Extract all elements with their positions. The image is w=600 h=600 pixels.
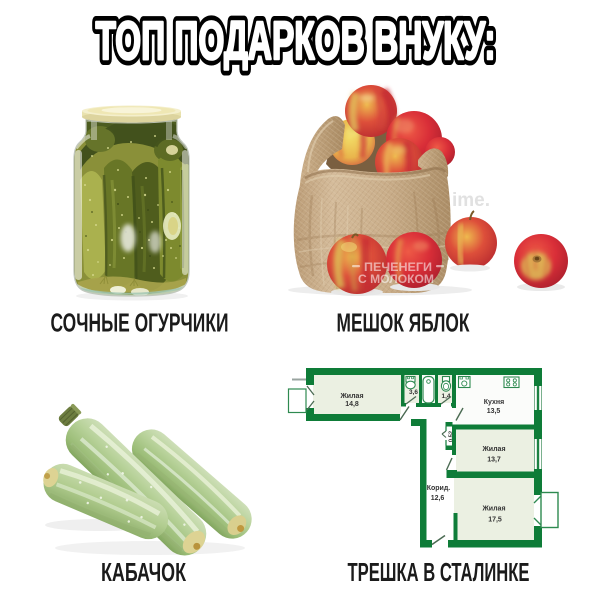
svg-text:ime.: ime. — [452, 190, 490, 211]
svg-text:МЕШОК ЯБЛОК: МЕШОК ЯБЛОК — [337, 308, 470, 338]
svg-text:13,7: 13,7 — [487, 457, 501, 464]
svg-text:ТОП ПОДАРКОВ ВНУКУ:: ТОП ПОДАРКОВ ВНУКУ: — [96, 11, 496, 71]
svg-text:14,8: 14,8 — [345, 401, 359, 408]
svg-text:12,6: 12,6 — [431, 495, 445, 502]
svg-text:С МОЛОКОМ: С МОЛОКОМ — [358, 274, 434, 286]
svg-text:Жилая: Жилая — [481, 506, 505, 513]
svg-text:ПЕЧЕНЕГИ: ПЕЧЕНЕГИ — [364, 262, 432, 274]
svg-text:Кухня: Кухня — [484, 399, 504, 406]
svg-text:Корид.: Корид. — [427, 485, 451, 492]
svg-text:Жилая: Жилая — [481, 446, 505, 453]
svg-text:13,5: 13,5 — [487, 408, 501, 415]
svg-text:17,5: 17,5 — [488, 517, 502, 524]
svg-text:ТРЕШКА В СТАЛИНКЕ: ТРЕШКА В СТАЛИНКЕ — [348, 557, 530, 587]
svg-text:1,4: 1,4 — [442, 393, 451, 400]
svg-text:Жилая: Жилая — [339, 393, 363, 400]
svg-text:3,6: 3,6 — [409, 389, 418, 396]
svg-text:КАБАЧОК: КАБАЧОК — [101, 557, 186, 587]
svg-text:СОЧНЫЕ ОГУРЧИКИ: СОЧНЫЕ ОГУРЧИКИ — [51, 308, 229, 338]
